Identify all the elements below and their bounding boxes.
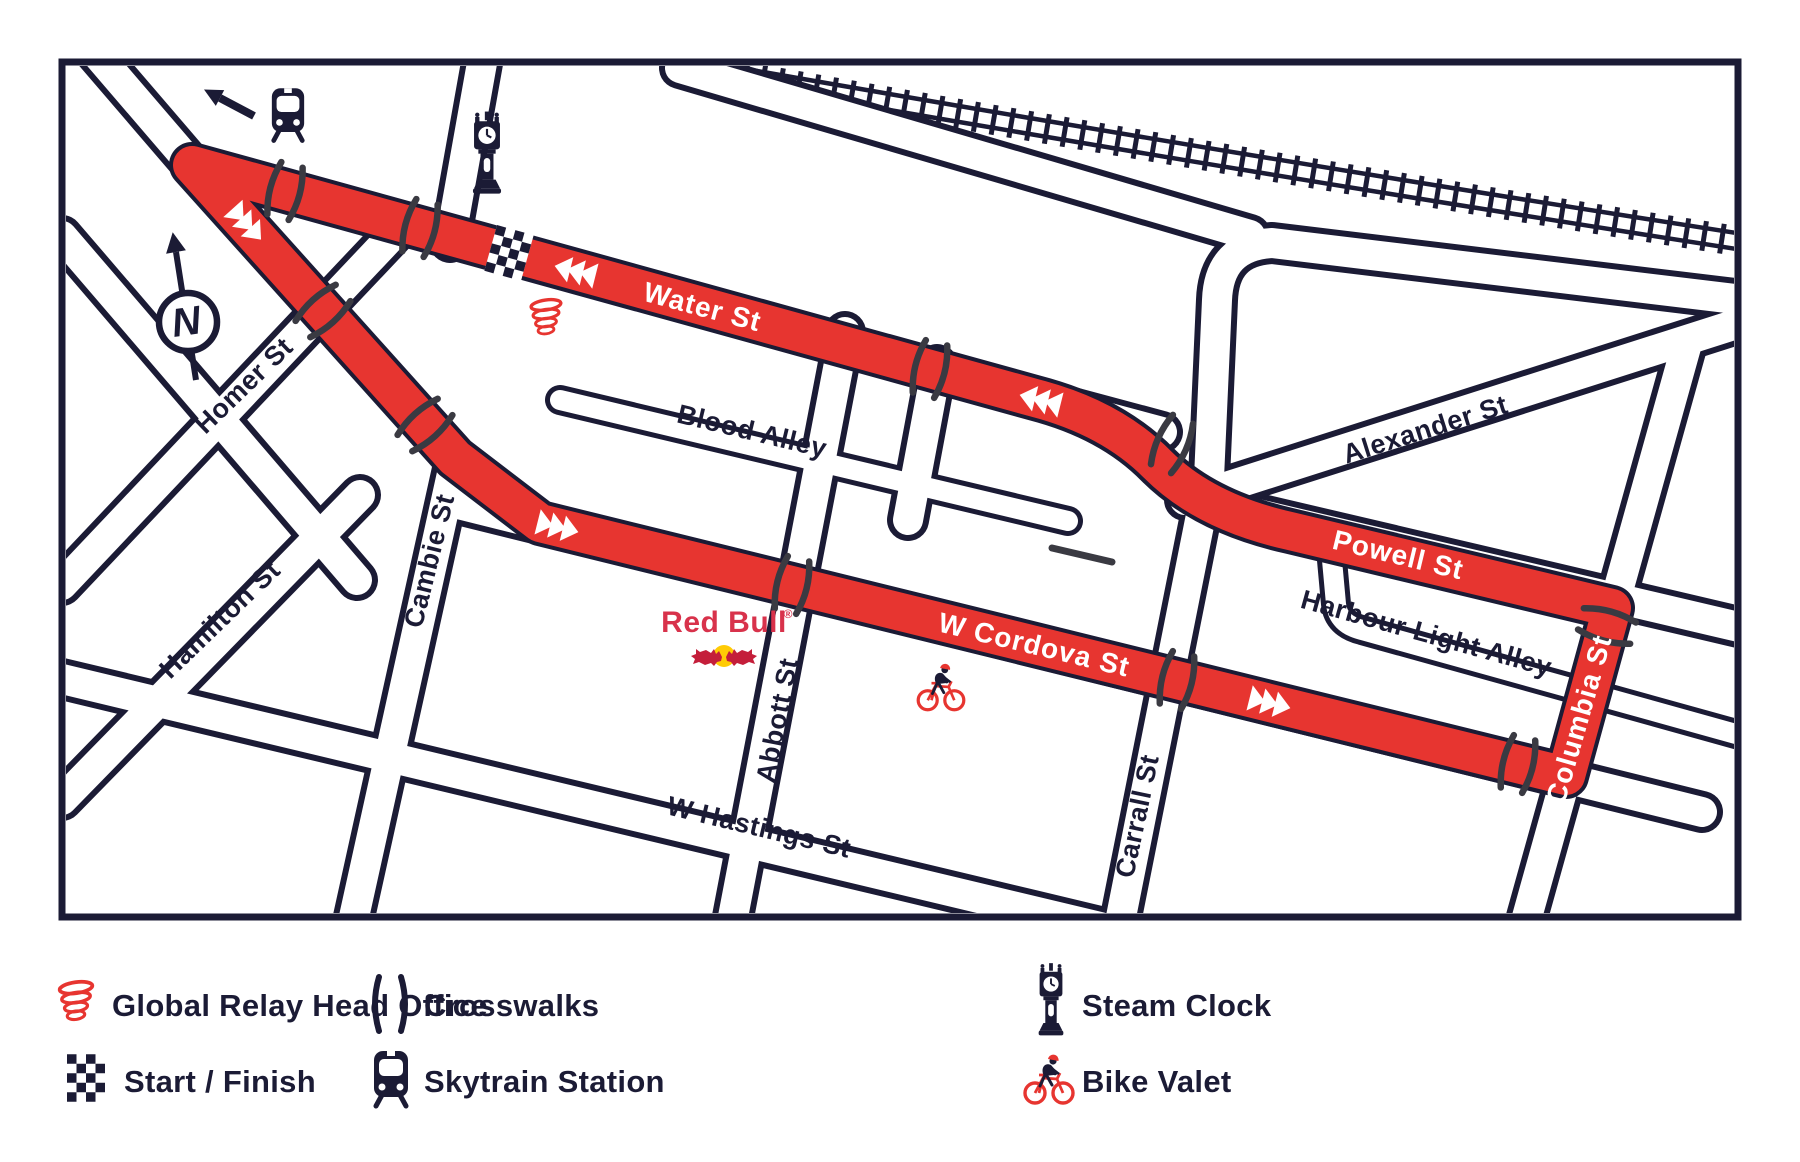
redbull-wordmark: Red Bull [661,606,787,639]
global-relay-swirl-icon [59,980,93,1021]
legend-label-crosswalks: Crosswalks [424,988,599,1023]
legend-item-skytrain: Skytrain Station [374,1051,665,1106]
legend-item-steam-clock: Steam Clock [1039,963,1272,1035]
legend-label-steam-clock: Steam Clock [1082,988,1272,1023]
legend: Global Relay Head Office Crosswalks Stea… [59,963,1272,1106]
skytrain-station-icon [374,1051,408,1106]
start-finish-checker-icon [67,1054,105,1102]
legend-item-start-finish: Start / Finish [67,1054,316,1102]
legend-label-bike-valet: Bike Valet [1082,1064,1231,1099]
legend-item-bike-valet: Bike Valet [1025,1055,1231,1103]
legend-label-skytrain: Skytrain Station [424,1064,665,1099]
steam-clock-icon [1039,963,1064,1035]
legend-label-start-finish: Start / Finish [124,1064,316,1099]
bike-valet-icon [1025,1055,1073,1103]
redbull-registered-mark: ® [784,607,793,621]
course-map-canvas: Water St W Cordova St Powell St Columbia… [0,0,1800,1162]
